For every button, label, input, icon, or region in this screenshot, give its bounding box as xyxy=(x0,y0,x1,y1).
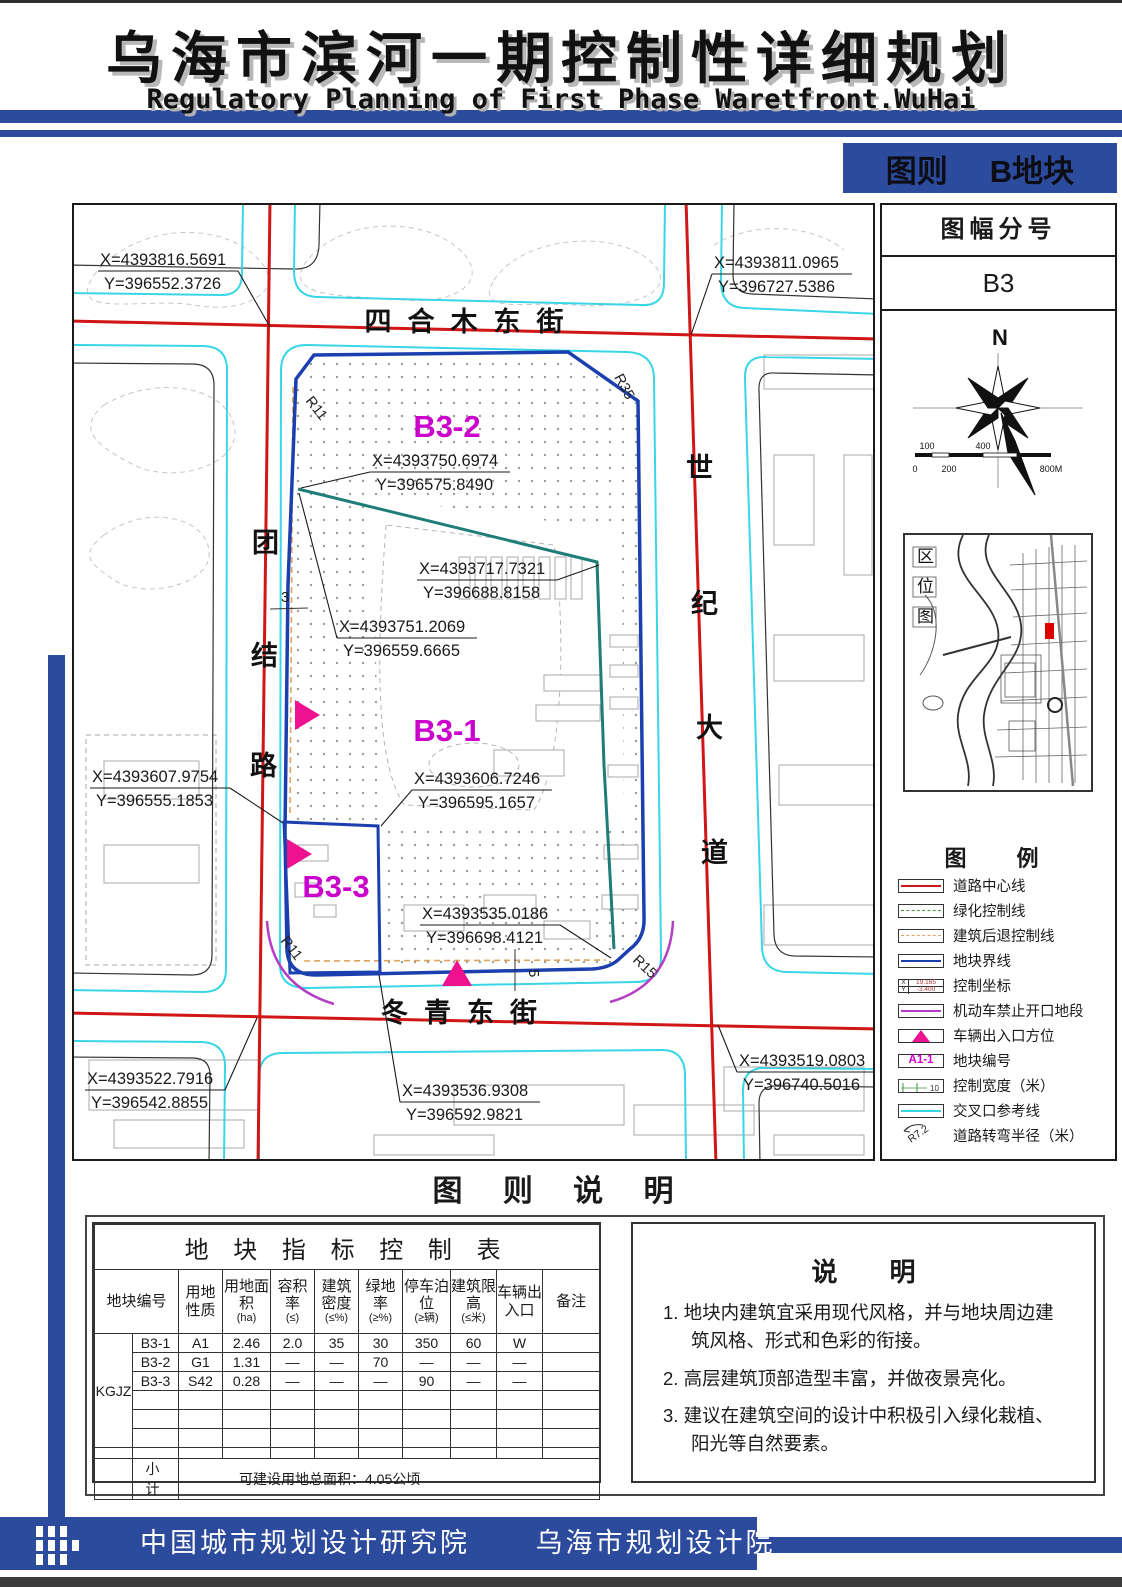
coord-callout: X=4393811.0965Y=396727.5386 xyxy=(691,254,852,335)
svg-text:0: 0 xyxy=(912,464,917,474)
bottom-rule xyxy=(0,1577,1122,1587)
svg-text:团: 团 xyxy=(252,528,279,558)
col-green-rate: 绿地率(≥%) xyxy=(359,1270,403,1334)
col-parking: 停车泊位(≥辆) xyxy=(403,1270,451,1334)
plan-sheet: 乌海市滨河一期控制性详细规划 Regulatory Planning of Fi… xyxy=(0,0,1122,1587)
parcel-number-icon: A1-1 xyxy=(898,1054,944,1068)
svg-text:位: 位 xyxy=(917,577,934,596)
svg-text:Y=396698.4121: Y=396698.4121 xyxy=(426,929,543,947)
table-row-spacer xyxy=(95,1448,600,1459)
svg-text:X=4393606.7246: X=4393606.7246 xyxy=(414,770,540,788)
col-vehicle-access: 车辆出入口 xyxy=(497,1270,543,1334)
turn-radius-icon: R7.2 xyxy=(898,1121,944,1150)
width-dim-3: 3 xyxy=(281,589,289,606)
svg-text:Y=396727.5386: Y=396727.5386 xyxy=(718,278,835,296)
table-title: 地 块 指 标 控 制 表 xyxy=(95,1225,600,1270)
institute-name-1: 中国城市规划设计研究院 xyxy=(140,1528,470,1558)
legend-item-road-centerline: 道路中心线 xyxy=(898,873,1108,898)
note-item: 3. 建议在建筑空间的设计中积极引入绿化栽植、阳光等自然要素。 xyxy=(663,1402,1068,1458)
svg-text:X=4393535.0186: X=4393535.0186 xyxy=(422,905,548,923)
intersection-reference-icon xyxy=(898,1104,944,1118)
svg-text:400: 400 xyxy=(975,441,990,451)
sidebar: 图幅分号 B3 N 100 400 0 xyxy=(880,203,1117,1161)
table-row-empty xyxy=(95,1429,600,1448)
table-header-row: 地块编号 用地性质 用地面积(ha) 容积率(≤) 建筑密度(≤%) 绿地率(≥… xyxy=(95,1270,600,1334)
svg-text:X=4393607.9754: X=4393607.9754 xyxy=(92,768,218,786)
coord-callout: X=4393522.7916Y=396542.8855 xyxy=(85,1018,257,1112)
col-parcel-id: 地块编号 xyxy=(95,1270,179,1334)
road-centerline-icon xyxy=(898,879,944,893)
left-accent-bar xyxy=(48,655,65,1517)
note-item: 1. 地块内建筑宜采用现代风格，并与地块周边建筑风格、形式和色彩的衔接。 xyxy=(663,1299,1068,1355)
notes-panel: 说 明 1. 地块内建筑宜采用现代风格，并与地块周边建筑风格、形式和色彩的衔接。… xyxy=(631,1222,1096,1483)
legend-item-no-opening: 机动车禁止开口地段 xyxy=(898,998,1108,1023)
subtotal-label: 小 计 xyxy=(133,1459,179,1500)
svg-text:区: 区 xyxy=(917,547,934,566)
legend-item-parcel-number: A1-1 地块编号 xyxy=(898,1048,1108,1073)
table-row-empty xyxy=(95,1410,600,1429)
col-remarks: 备注 xyxy=(543,1270,600,1334)
coord-callout: X=4393816.5691Y=396552.3726 xyxy=(98,251,270,327)
svg-text:200: 200 xyxy=(941,464,956,474)
svg-text:世: 世 xyxy=(686,453,713,483)
svg-text:X=4393751.2069: X=4393751.2069 xyxy=(339,618,465,636)
svg-text:Y=396740.5016: Y=396740.5016 xyxy=(743,1076,860,1094)
subtotal-value: 可建设用地总面积：4.05公顷 xyxy=(179,1459,600,1500)
vehicle-entry-icon xyxy=(898,1029,944,1043)
parcel-label-b33: B3-3 xyxy=(302,869,369,904)
location-highlight xyxy=(1045,623,1054,639)
group-label: KGJZ xyxy=(95,1334,133,1448)
legend-title: 图 例 xyxy=(882,841,1115,873)
sheet-number: B3 xyxy=(882,257,1115,311)
top-rule xyxy=(0,0,1122,3)
svg-text:Y=396552.3726: Y=396552.3726 xyxy=(104,275,221,293)
svg-text:Y=396559.6665: Y=396559.6665 xyxy=(343,642,460,660)
location-map-svg: 区 位 图 xyxy=(905,535,1087,786)
parcel-boundary-icon xyxy=(898,954,944,968)
col-density: 建筑密度(≤%) xyxy=(315,1270,359,1334)
road-east xyxy=(686,205,716,1159)
radius-r15: R15 xyxy=(629,952,659,982)
header-bar-thin xyxy=(0,130,1122,137)
control-width-icon: 10 xyxy=(898,1079,944,1093)
svg-text:800M: 800M xyxy=(1040,464,1063,474)
svg-text:图: 图 xyxy=(917,607,934,626)
table-row: B3-2G11.31 ——70 ——— xyxy=(95,1353,600,1372)
scale-bar: 100 400 0 200 800M xyxy=(905,440,1095,476)
notes-title: 说 明 xyxy=(633,1252,1094,1289)
plan-map-svg: 3 5 R11 R35 R11 R15 四合木东街 冬青东街 团 结 路 世 xyxy=(74,205,873,1159)
svg-text:X=4393717.7321: X=4393717.7321 xyxy=(419,560,545,578)
plan-map: 3 5 R11 R35 R11 R15 四合木东街 冬青东街 团 结 路 世 xyxy=(72,203,875,1161)
legend-item-intersection-reference: 交叉口参考线 xyxy=(898,1098,1108,1123)
sheet-badge: 图则 B地块 xyxy=(843,143,1117,193)
institute-logo-icon xyxy=(36,1526,79,1565)
svg-text:X=4393811.0965: X=4393811.0965 xyxy=(714,254,839,272)
svg-text:路: 路 xyxy=(250,750,278,781)
legend: 道路中心线 绿化控制线 建筑后退控制线 地块界线 X 19.165 Y -3.4… xyxy=(898,873,1108,1148)
parcel-indicator-table: 地 块 指 标 控 制 表 地块编号 用地性质 用地面积(ha) 容积率(≤) … xyxy=(94,1224,600,1500)
svg-text:100: 100 xyxy=(919,441,934,451)
width-dim-5: 5 xyxy=(525,969,542,977)
sheet-badge-block: B地块 xyxy=(990,146,1074,191)
control-table: 地 块 指 标 控 制 表 地块编号 用地性质 用地面积(ha) 容积率(≤) … xyxy=(92,1222,601,1483)
footer-credits: 中国城市规划设计研究院 乌海市规划设计院 xyxy=(140,1517,776,1570)
sheet-index-title: 图幅分号 xyxy=(882,205,1115,257)
street-east: 世 纪 大 道 xyxy=(686,453,728,868)
setback-line-icon xyxy=(898,929,944,943)
legend-item-parcel-boundary: 地块界线 xyxy=(898,948,1108,973)
street-south: 冬青东街 xyxy=(381,997,553,1028)
svg-text:Y=396555.1853: Y=396555.1853 xyxy=(96,792,213,810)
legend-item-setback: 建筑后退控制线 xyxy=(898,923,1108,948)
table-row-empty xyxy=(95,1391,600,1410)
svg-text:纪: 纪 xyxy=(691,588,718,619)
institute-name-2: 乌海市规划设计院 xyxy=(536,1528,776,1558)
footer-bar-extension xyxy=(757,1537,1122,1553)
col-far: 容积率(≤) xyxy=(271,1270,315,1334)
legend-item-control-coordinate: X 19.165 Y -3.400 控制坐标 xyxy=(898,973,1108,998)
legend-item-control-width: 10 控制宽度（米） xyxy=(898,1073,1108,1098)
table-subtotal-row: 小 计 可建设用地总面积：4.05公顷 xyxy=(95,1459,600,1500)
section-title: 图 则 说 明 xyxy=(0,1166,1122,1210)
svg-text:Y=396592.9821: Y=396592.9821 xyxy=(406,1106,523,1124)
col-land-use: 用地性质 xyxy=(179,1270,223,1334)
col-land-area: 用地面积(ha) xyxy=(223,1270,271,1334)
bottom-panel: 地 块 指 标 控 制 表 地块编号 用地性质 用地面积(ha) 容积率(≤) … xyxy=(85,1215,1105,1496)
street-north: 四合木东街 xyxy=(365,306,580,337)
note-item: 2. 高层建筑顶部造型丰富，并做夜景亮化。 xyxy=(663,1365,1068,1393)
svg-text:Y=396595.1657: Y=396595.1657 xyxy=(418,794,535,812)
parcel-label-b32: B3-2 xyxy=(413,409,480,444)
no-opening-line-icon xyxy=(898,1004,944,1018)
control-coordinate-icon: X 19.165 Y -3.400 xyxy=(898,979,944,993)
legend-item-turn-radius: R7.2 道路转弯半径（米） xyxy=(898,1123,1108,1148)
coord-callout: X=4393519.0803Y=396740.5016 xyxy=(718,1025,873,1094)
svg-text:Y=396575.8490: Y=396575.8490 xyxy=(376,476,493,494)
parcel-label-b31: B3-1 xyxy=(413,713,480,748)
table-row: B3-3S420.28 ——— 90—— xyxy=(95,1372,600,1391)
svg-text:X=4393816.5691: X=4393816.5691 xyxy=(100,251,226,269)
page-title: 乌海市滨河一期控制性详细规划 xyxy=(0,14,1122,95)
compass-rose-icon: N xyxy=(883,313,1113,513)
svg-text:X=4393519.0803: X=4393519.0803 xyxy=(739,1052,865,1070)
location-map: 区 位 图 xyxy=(903,533,1093,792)
svg-text:大: 大 xyxy=(696,713,723,743)
svg-text:X=4393536.9308: X=4393536.9308 xyxy=(402,1082,528,1100)
table-row: KGJZ B3-1A12.46 2.03530 35060W xyxy=(95,1334,600,1353)
svg-text:结: 结 xyxy=(251,641,278,671)
svg-text:Y=396688.8158: Y=396688.8158 xyxy=(423,584,540,602)
svg-text:X=4393522.7916: X=4393522.7916 xyxy=(87,1070,213,1088)
col-height-limit: 建筑限高(≤米) xyxy=(451,1270,497,1334)
svg-text:X=4393750.6974: X=4393750.6974 xyxy=(372,452,498,470)
svg-text:道: 道 xyxy=(701,837,728,868)
legend-item-vehicle-entry: 车辆出入口方位 xyxy=(898,1023,1108,1048)
page-subtitle: Regulatory Planning of First Phase Waret… xyxy=(0,84,1122,115)
legend-item-green-control: 绿化控制线 xyxy=(898,898,1108,923)
green-control-line-icon xyxy=(898,904,944,918)
sheet-badge-type: 图则 xyxy=(886,146,948,191)
svg-text:N: N xyxy=(992,325,1008,350)
svg-text:10: 10 xyxy=(930,1084,939,1093)
svg-text:Y=396542.8855: Y=396542.8855 xyxy=(91,1094,208,1112)
